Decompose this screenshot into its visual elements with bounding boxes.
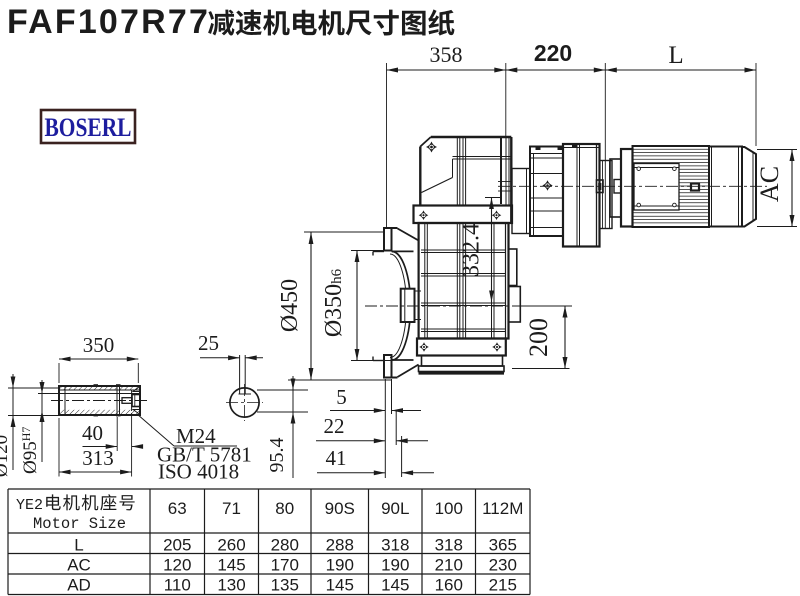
svg-text:160: 160 [435,576,463,595]
svg-text:220: 220 [534,40,572,66]
svg-text:90S: 90S [325,499,355,518]
svg-text:90L: 90L [381,499,409,518]
svg-text:5: 5 [336,385,347,409]
svg-text:145: 145 [326,576,354,595]
svg-text:332.4: 332.4 [459,223,485,277]
svg-text:63: 63 [168,499,187,518]
svg-text:210: 210 [435,556,463,575]
svg-text:112M: 112M [482,499,523,518]
svg-text:190: 190 [381,556,409,575]
svg-text:40: 40 [82,421,103,445]
svg-text:100: 100 [435,499,463,518]
svg-text:110: 110 [164,576,191,595]
svg-text:Motor Size: Motor Size [33,515,126,533]
svg-text:ISO 4018: ISO 4018 [158,460,239,484]
svg-text:358: 358 [430,42,463,67]
svg-text:200: 200 [524,318,553,357]
svg-text:135: 135 [271,576,299,595]
svg-text:350: 350 [83,333,115,357]
svg-text:FAF107R77: FAF107R77 [7,3,210,41]
svg-text:145: 145 [381,576,409,595]
svg-text:313: 313 [82,446,114,470]
svg-text:288: 288 [326,536,354,555]
svg-text:AD: AD [67,576,91,595]
svg-text:205: 205 [163,536,191,555]
svg-text:YE2: YE2 [16,497,43,514]
svg-text:318: 318 [435,536,463,555]
svg-text:L: L [668,42,683,69]
svg-text:318: 318 [381,536,409,555]
svg-text:130: 130 [217,576,245,595]
svg-text:Ø450: Ø450 [277,279,303,332]
svg-text:280: 280 [271,536,299,555]
svg-text:71: 71 [222,499,241,518]
svg-text:25: 25 [198,331,219,355]
svg-text:120: 120 [163,556,191,575]
svg-text:22: 22 [324,414,345,438]
svg-text:260: 260 [217,536,245,555]
svg-text:41: 41 [326,446,347,470]
svg-text:170: 170 [271,556,299,575]
svg-text:190: 190 [326,556,354,575]
svg-text:BOSERL: BOSERL [45,113,132,142]
svg-text:95.4: 95.4 [266,438,288,473]
svg-text:AC: AC [67,556,91,575]
svg-text:230: 230 [489,556,517,575]
svg-text:145: 145 [217,556,245,575]
svg-text:L: L [74,536,83,555]
svg-text:AC: AC [755,166,784,202]
svg-text:80: 80 [275,499,294,518]
svg-text:365: 365 [489,536,517,555]
svg-text:Ø120: Ø120 [0,435,12,477]
svg-text:215: 215 [489,576,517,595]
